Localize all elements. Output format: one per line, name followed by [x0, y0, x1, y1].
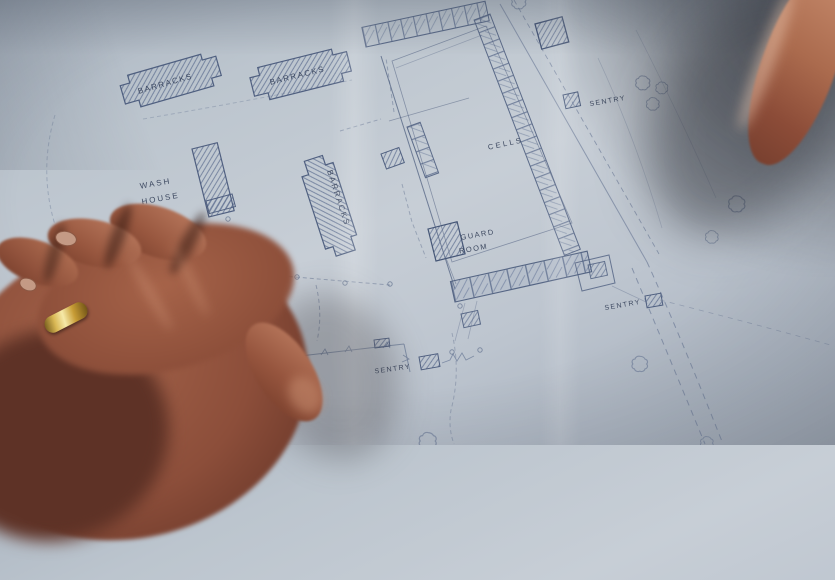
marker-icon — [458, 304, 462, 308]
cell-band-west-partial — [407, 122, 439, 178]
cells-label: CELLS — [487, 135, 524, 151]
tree-icon — [419, 432, 436, 445]
sentry-north-label: SENTRY — [589, 95, 626, 108]
tree-icon — [632, 356, 648, 371]
sentry-south-label: SENTRY — [604, 299, 641, 312]
road-southeast-1 — [647, 262, 723, 444]
scene: { "blueprint": { "labels": { "barracks_1… — [0, 0, 835, 445]
northeast-building — [535, 17, 569, 49]
guard-room-label-line1: GUARD — [460, 227, 496, 242]
fence-southwest-dashed — [402, 184, 426, 258]
tree-icon — [700, 437, 713, 445]
fence-zigzag — [442, 353, 474, 363]
sentry-post-north — [563, 92, 581, 109]
annex-room — [588, 261, 608, 278]
tree-icon — [512, 0, 526, 9]
sentry-post-south — [645, 293, 663, 308]
marker-icon — [388, 282, 392, 286]
sentry-post-gate — [419, 354, 440, 370]
road-east — [660, 300, 834, 346]
road-southeast-2 — [632, 268, 705, 444]
cell-band-east — [474, 14, 580, 255]
courtyard-cross-line — [389, 98, 469, 121]
cell-band-south — [450, 251, 591, 302]
perimeter-fence-east-dashed — [514, 0, 659, 254]
marker-icon — [478, 348, 482, 352]
courtyard-inner-line — [396, 35, 482, 68]
cells-compound — [362, 1, 615, 327]
guard-room-link — [446, 258, 456, 284]
barracks-building-3 — [298, 153, 361, 259]
gatehouse-square — [461, 310, 481, 327]
fence-west-spur — [340, 119, 381, 131]
wash-house-label-line1: WASH — [139, 176, 172, 190]
tree-icon — [636, 76, 650, 90]
marker-icon — [450, 350, 454, 354]
contour-far-west — [47, 115, 56, 228]
cell-band-north — [362, 1, 489, 47]
small-store-building — [381, 148, 404, 170]
